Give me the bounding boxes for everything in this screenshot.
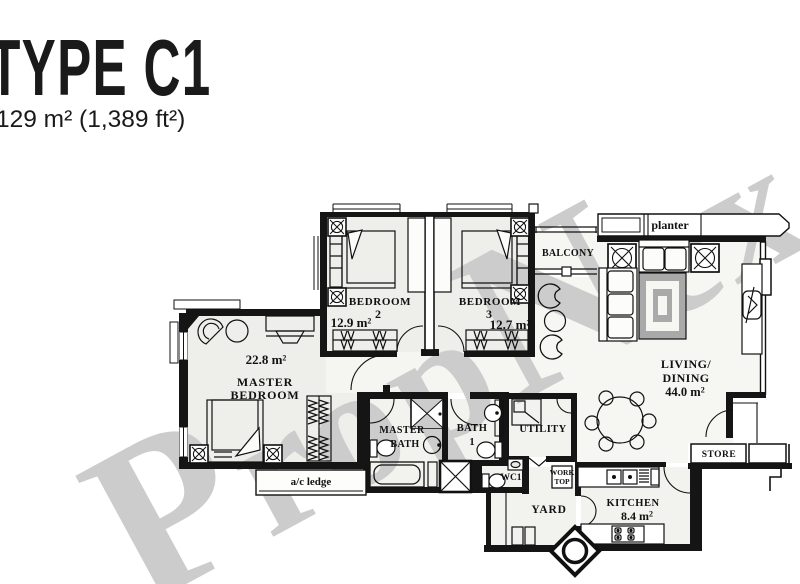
svg-text:BATH: BATH bbox=[390, 439, 419, 450]
svg-text:BEDROOM: BEDROOM bbox=[231, 388, 300, 402]
svg-text:BALCONY: BALCONY bbox=[542, 248, 595, 259]
svg-text:KITCHEN: KITCHEN bbox=[606, 498, 659, 509]
svg-text:12.9 m2: 12.9 m2 bbox=[331, 315, 372, 330]
svg-text:22.8 m2: 22.8 m2 bbox=[246, 352, 287, 367]
svg-text:129 m² (1,389 ft²): 129 m² (1,389 ft²) bbox=[0, 106, 185, 133]
svg-text:TOP: TOP bbox=[554, 477, 570, 486]
svg-text:MASTER: MASTER bbox=[379, 425, 425, 436]
svg-text:a/c ledge: a/c ledge bbox=[291, 476, 332, 488]
svg-text:2: 2 bbox=[375, 307, 381, 321]
svg-text:1: 1 bbox=[469, 437, 474, 448]
svg-text:WC1: WC1 bbox=[500, 473, 521, 483]
svg-text:MASTER: MASTER bbox=[237, 375, 293, 389]
svg-text:TYPE C1: TYPE C1 bbox=[0, 24, 211, 113]
svg-text:DINING: DINING bbox=[662, 371, 709, 385]
svg-text:STORE: STORE bbox=[702, 450, 737, 460]
svg-text:planter: planter bbox=[651, 218, 689, 232]
svg-text:YARD: YARD bbox=[531, 504, 566, 516]
svg-text:UTILITY: UTILITY bbox=[519, 424, 566, 435]
svg-text:LIVING/: LIVING/ bbox=[661, 357, 711, 371]
svg-text:12.7 m2: 12.7 m2 bbox=[490, 317, 531, 332]
svg-text:WORK: WORK bbox=[550, 468, 575, 477]
svg-text:44.0 m2: 44.0 m2 bbox=[665, 385, 704, 399]
svg-text:BATH: BATH bbox=[457, 423, 488, 434]
svg-text:8.4 m2: 8.4 m2 bbox=[621, 509, 653, 523]
